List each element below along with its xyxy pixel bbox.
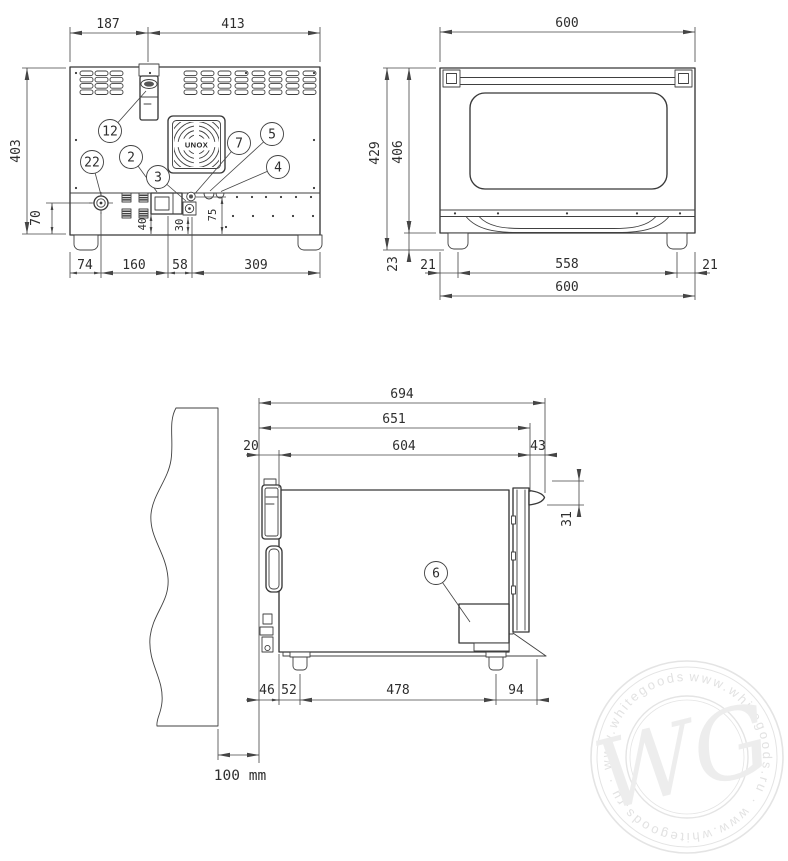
technical-drawing-page: UNOX <box>0 0 788 861</box>
dim-23: 23 <box>386 256 401 272</box>
dim-94: 94 <box>508 683 524 698</box>
front-foot-right <box>667 233 687 249</box>
cooling-fan: UNOX <box>165 113 229 177</box>
callout-3: 3 <box>154 171 162 186</box>
dim-478: 478 <box>386 683 409 698</box>
dim-694: 694 <box>390 387 414 402</box>
dim-600-bottom: 600 <box>555 280 578 295</box>
dim-43: 43 <box>530 439 546 454</box>
dim-406: 406 <box>391 140 406 163</box>
wall-section <box>150 408 218 726</box>
dim-52: 52 <box>281 683 297 698</box>
dim-75: 75 <box>207 209 219 222</box>
side-feet <box>290 652 506 670</box>
side-back-bracket <box>266 546 282 592</box>
callout-12: 12 <box>102 125 118 140</box>
terminal-box <box>151 193 182 214</box>
callout-2: 2 <box>127 151 135 166</box>
dim-403: 403 <box>9 139 24 162</box>
dim-20: 20 <box>243 439 259 454</box>
dim-558: 558 <box>555 257 578 272</box>
dim-70: 70 <box>29 210 44 226</box>
dim-31: 31 <box>560 511 575 527</box>
callout-7: 7 <box>235 137 243 152</box>
front-view: 600 429 406 23 21 558 21 600 <box>368 16 718 300</box>
small-component <box>183 202 196 215</box>
side-chimney <box>262 479 281 539</box>
callout-5: 5 <box>268 128 276 143</box>
dim-413: 413 <box>221 17 244 32</box>
dim-21-left: 21 <box>420 258 436 273</box>
dim-651: 651 <box>382 412 405 427</box>
dim-429: 429 <box>368 141 383 164</box>
dim-160: 160 <box>122 258 145 273</box>
earth-stud <box>187 192 196 201</box>
dim-21-right: 21 <box>702 258 718 273</box>
callout-6: 6 <box>432 567 440 582</box>
dim-40: 40 <box>137 218 149 231</box>
dim-wall-clearance: 100 mm <box>214 768 267 784</box>
dim-58: 58 <box>172 258 188 273</box>
rear-foot-right <box>298 235 322 250</box>
front-foot-left <box>448 233 468 249</box>
dim-600-top: 600 <box>555 16 578 31</box>
rear-view: UNOX <box>9 17 322 278</box>
side-view: 6 <box>150 387 584 784</box>
dim-309: 309 <box>244 258 267 273</box>
dim-30: 30 <box>174 219 186 232</box>
dim-604: 604 <box>392 439 416 454</box>
callout-4: 4 <box>274 161 282 176</box>
door-handle-knob <box>529 491 545 506</box>
rear-foot-left <box>74 235 98 250</box>
dim-74: 74 <box>77 258 93 273</box>
callout-22: 22 <box>84 156 100 171</box>
chimney-vent <box>139 64 159 120</box>
side-back-fittings <box>260 614 273 652</box>
dim-187: 187 <box>96 17 119 32</box>
fan-brand-label: UNOX <box>185 141 208 150</box>
dim-46: 46 <box>259 683 275 698</box>
